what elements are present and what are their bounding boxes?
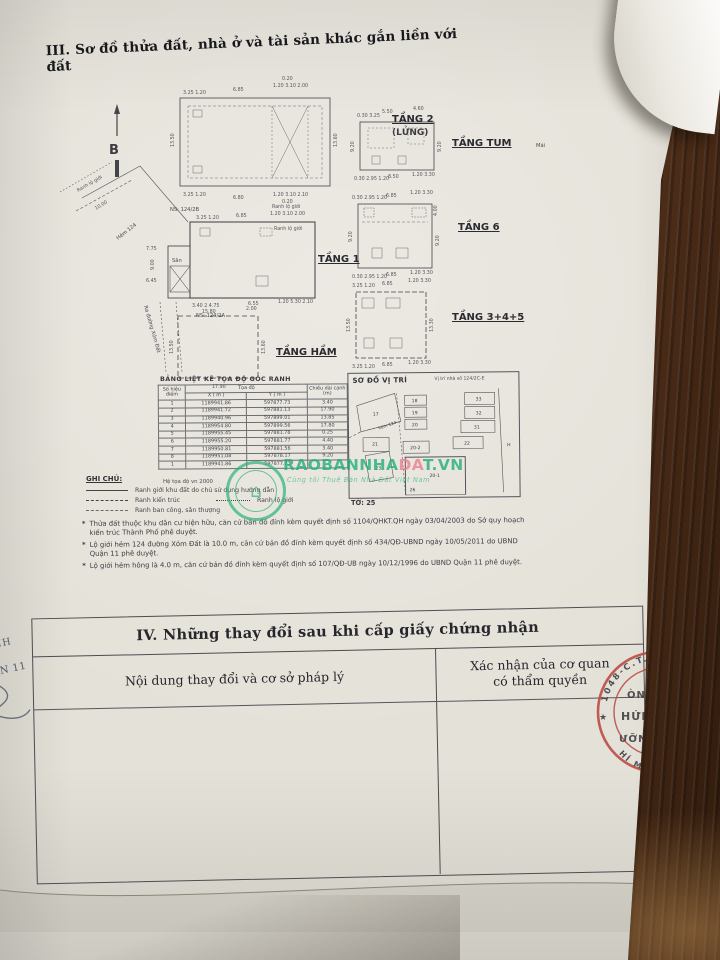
dim: 1.20 3.30 xyxy=(408,278,431,284)
watermark-logo-glyph: ⌂ xyxy=(235,470,277,512)
dim: 9.20 xyxy=(435,235,441,246)
dim: 13.50 xyxy=(170,133,176,147)
note-text: Thửa đất thuộc khu dân cư hiện hữu, căn … xyxy=(89,516,534,538)
dim: 3.25 1.20 xyxy=(196,215,219,221)
dim: 3.40 2 4.75 xyxy=(192,303,219,309)
hem-124-label: Hẻm 124 xyxy=(115,221,139,242)
plan-tang345-label: TẦNG 3+4+5 xyxy=(452,309,524,323)
dim: 6.85 xyxy=(386,272,397,278)
col-len: Chiều dài cạnh (m) xyxy=(307,384,347,400)
parcel-label: 17 xyxy=(373,412,379,418)
col-point: Số hiệu điểm xyxy=(158,385,185,400)
dim: 1.20 3.30 xyxy=(410,190,433,196)
dim: 7.75 xyxy=(146,246,157,252)
watermark-logo-icon: ⌂ xyxy=(226,461,286,521)
parcel-label: 18 xyxy=(412,398,418,404)
dim: 8.50 xyxy=(388,174,399,180)
plan-tum-label: TẦNG TUM xyxy=(452,135,512,149)
legend-datum: Hệ tọa độ vn 2000 xyxy=(163,479,213,485)
section4-col1: Nội dung thay đổi và cơ sở pháp lý xyxy=(33,649,441,882)
stamp-text-fragment: HỨNG xyxy=(621,710,662,723)
legend-heading: GHI CHÚ: xyxy=(86,475,122,483)
dim: 13.30 xyxy=(429,318,435,332)
stamp-text-fragment: ÒNG xyxy=(627,688,655,701)
dim: 9.20 xyxy=(348,231,354,242)
parcel-label: 21 xyxy=(372,442,378,448)
plan-tang1-label: TẦNG 1 xyxy=(318,251,360,265)
photo-of-land-certificate: { "section3": { "title": "III. Sơ đồ thử… xyxy=(0,0,720,960)
dim: 13.60 xyxy=(333,133,339,147)
location-map-subtitle: Vị trí nhà số 124/2C-E xyxy=(434,376,484,382)
dim: 6.85 xyxy=(382,362,393,368)
parcel-label: 20 xyxy=(412,422,418,428)
parcel-label: H xyxy=(507,442,511,448)
note-text: Lộ giới hẻm 124 đường Xóm Đất là 10.0 m,… xyxy=(90,537,535,559)
folded-paper-corner xyxy=(603,0,720,134)
parcel-label: 32 xyxy=(476,410,482,416)
dim: 0.30 3.25 xyxy=(357,113,380,119)
plan-ham-label: TẦNG HẦM xyxy=(276,344,337,358)
section4-col1-header: Nội dung thay đổi và cơ sở pháp lý xyxy=(33,649,436,710)
north-label: B xyxy=(109,143,119,158)
dim: 13.60 xyxy=(261,340,267,354)
dim: 9.00 xyxy=(150,259,156,270)
ranh-lo-gioi-label: Ranh lộ giới xyxy=(274,225,302,232)
legend-label: Ranh kiến trúc xyxy=(135,497,180,504)
dim: 5.50 xyxy=(382,109,393,115)
watermark-tagline: Cùng tôi Thuê Bán Nhà Đất Việt Nam xyxy=(287,476,430,484)
note-text: Lộ giới hẻm hông là 4.0 m, căn cứ bản đồ… xyxy=(90,558,522,571)
san-label: Sân xyxy=(172,257,182,264)
north-arrow-icon: B xyxy=(109,104,120,177)
watermark-brand: RAOBANNHADAT.VN xyxy=(283,456,464,474)
dim: 1.20 3.10 2.00 xyxy=(273,83,308,89)
dim: 9.20 xyxy=(350,141,356,152)
plan-tang2-label2: (LỬNG) xyxy=(392,125,428,138)
dim: 4.60 xyxy=(413,106,424,112)
parcel-label: 26 xyxy=(410,487,416,493)
dim: 6.85 xyxy=(386,193,397,199)
legend-line-dashed xyxy=(86,500,128,501)
dim: 6.85 xyxy=(233,87,244,93)
dim: 0.20 xyxy=(282,76,293,82)
dim: 15.80 xyxy=(202,309,216,315)
margin-fragment: MINH xyxy=(0,631,38,654)
dim: 10.00 xyxy=(94,199,109,211)
dim: 6.80 xyxy=(233,195,244,201)
dim: 3.25 1.20 xyxy=(352,283,375,289)
ns-top-label: NS: 124/2B xyxy=(170,207,200,213)
mai-label: Mái xyxy=(536,142,545,149)
paper-bottom-edge xyxy=(0,872,660,932)
dim: 6.85 xyxy=(382,281,393,287)
dim: 9.20 xyxy=(437,141,443,152)
dim: 3.25 1.20 xyxy=(352,364,375,370)
brand-part: DA xyxy=(398,456,422,474)
plan-tum: 0.30 3.25 5.50 4.60 9.20 9.20 0.30 2.95 … xyxy=(350,106,545,182)
dim: 3.25 1.20 xyxy=(183,192,206,198)
legend-item: Ranh ban công, sân thượng xyxy=(86,507,220,514)
stamp-star-icon: ★ xyxy=(599,713,607,723)
plan-tang1: NS: 124/2B 3.25 1.20 6.85 1.20 3.10 2.00… xyxy=(60,162,360,372)
location-map-title: SƠ ĐỒ VỊ TRÍ xyxy=(352,376,407,385)
dim: 0.30 2.95 1.20 xyxy=(352,274,387,280)
parcel-label: 19 xyxy=(412,410,418,416)
brand-part: T.VN xyxy=(423,456,464,474)
plan-tang2-label: TẦNG 2 xyxy=(392,111,434,125)
section4-title: IV. Những thay đổi sau khi cấp giấy chứn… xyxy=(136,619,539,644)
dim: 13.50 xyxy=(169,340,175,354)
dim: 2.00 xyxy=(246,306,257,312)
dim: 1.20 3.30 xyxy=(408,360,431,366)
note-item: *Lộ giới hẻm 124 đường Xóm Đất là 10.0 m… xyxy=(82,537,534,559)
dim: 1.20 3.10 2.10 xyxy=(273,192,308,198)
brand-part: RAOBANNHA xyxy=(283,456,398,474)
section4-table: IV. Những thay đổi sau khi cấp giấy chứn… xyxy=(31,606,648,885)
parcel-label: 22 xyxy=(464,441,470,447)
dim: 0.30 2.95 1.20 xyxy=(354,176,389,182)
stamp-text-fragment: ƯỠNG xyxy=(619,732,657,745)
plan-tang2: 3.25 1.20 6.85 0.20 1.20 3.10 2.00 13.50… xyxy=(170,76,434,205)
dim: 6.45 xyxy=(146,278,157,284)
plan-tang6: 0.30 2.95 1.20 6.85 1.20 3.30 4.00 9.20 … xyxy=(348,190,500,280)
dim: 3.25 1.20 xyxy=(183,90,206,96)
dim: 4.00 xyxy=(433,205,439,216)
note-item: *Lộ giới hẻm hông là 4.0 m, căn cứ bản đ… xyxy=(82,558,534,571)
plan-tang345: 3.25 1.20 6.85 1.20 3.30 13.50 13.30 3.2… xyxy=(346,278,524,370)
hem-124-map-label: hẻm 124 xyxy=(378,420,398,431)
parcel-label: 20-2 xyxy=(410,445,421,451)
dim: 1.20 3.30 xyxy=(410,270,433,276)
section3-title: III. Sơ đồ thửa đất, nhà ở và tài sản kh… xyxy=(46,25,487,75)
note-item: *Thửa đất thuộc khu dân cư hiện hữu, căn… xyxy=(82,516,534,538)
dim: 1.20 3.10 2.00 xyxy=(270,211,305,217)
coord-table-title: BẢNG LIỆT KÊ TỌA ĐỘ GÓC RANH xyxy=(160,375,291,383)
legend-line-solid xyxy=(86,490,128,491)
parcel-label: 33 xyxy=(476,397,482,403)
notes-list: *Thửa đất thuộc khu dân cư hiện hữu, căn… xyxy=(82,516,534,574)
sheet-number: TỜ: 25 xyxy=(351,499,375,507)
plan-tang6-label: TẦNG 6 xyxy=(458,219,500,233)
dim: 0.30 2.95 1.20 xyxy=(352,195,387,201)
official-stamp: 1048-C.T.H.Đ HÍ MINH ★ ÒNG HỨNG ƯỠNG xyxy=(575,648,720,783)
legend-label: Ranh ban công, sân thượng xyxy=(135,507,220,514)
parcel-label: 31 xyxy=(474,425,480,431)
street-label: Ra đường Xóm Đất xyxy=(142,305,162,354)
dim: 6.85 xyxy=(236,213,247,219)
legend-line-dashdot xyxy=(86,510,128,511)
dim: 1.20 3.30 xyxy=(412,172,435,178)
dim: 1.20 5.30 2.10 xyxy=(278,299,313,305)
ranh-lo-gioi-label: Ranh lộ giới xyxy=(76,174,104,194)
ranh-lo-gioi-label: Ranh lộ giới xyxy=(272,203,300,210)
dim: 13.50 xyxy=(346,318,352,332)
